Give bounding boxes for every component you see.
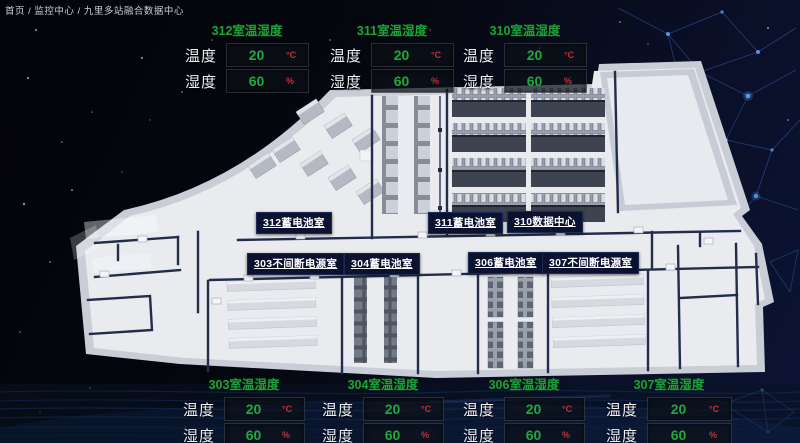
humidity-label: 湿度: [185, 71, 221, 92]
temperature-readout: 20 °C: [371, 43, 454, 67]
humidity-label: 湿度: [606, 425, 642, 443]
temperature-readout: 20 °C: [224, 397, 305, 421]
humidity-value: 60: [227, 73, 286, 89]
panel-title: 304室温湿度: [322, 374, 444, 393]
temperature-value: 20: [364, 401, 421, 417]
room-label-310[interactable]: 310数据中心: [507, 211, 583, 233]
temperature-readout: 20 °C: [504, 43, 587, 67]
sensor-panel-311: 311室温湿度 温度 20 °C 湿度 60 %: [330, 20, 454, 96]
humidity-value: 60: [372, 73, 431, 89]
breadcrumb[interactable]: 首页 / 监控中心 / 九里多站融合数据中心: [5, 3, 184, 17]
panel-title: 303室温湿度: [183, 374, 305, 393]
temperature-value: 20: [648, 401, 709, 417]
temperature-label: 温度: [330, 45, 366, 66]
celsius-unit: °C: [282, 404, 304, 414]
temperature-label: 温度: [463, 45, 499, 66]
celsius-unit: °C: [709, 404, 731, 414]
panel-title: 306室温湿度: [463, 374, 585, 393]
percent-unit: %: [421, 430, 443, 440]
temperature-label: 温度: [322, 399, 358, 420]
celsius-unit: °C: [564, 50, 586, 60]
temperature-value: 20: [227, 47, 286, 63]
sensor-panel-303: 303室温湿度 温度 20 °C 湿度 60 %: [183, 374, 305, 443]
temperature-label: 温度: [606, 399, 642, 420]
percent-unit: %: [286, 76, 308, 86]
humidity-readout: 60 %: [224, 423, 305, 443]
humidity-label: 湿度: [183, 425, 219, 443]
humidity-label: 湿度: [322, 425, 358, 443]
humidity-label: 湿度: [463, 71, 499, 92]
temperature-label: 温度: [463, 399, 499, 420]
temperature-value: 20: [505, 401, 562, 417]
humidity-value: 60: [364, 427, 421, 443]
monitoring-dashboard: 首页 / 监控中心 / 九里多站融合数据中心 312室温湿度 温度 20 °C …: [0, 0, 800, 443]
room-label-312[interactable]: 312蓄电池室: [256, 212, 332, 234]
humidity-readout: 60 %: [371, 69, 454, 93]
celsius-unit: °C: [286, 50, 308, 60]
sensor-panel-310: 310室温湿度 温度 20 °C 湿度 60 %: [463, 20, 587, 96]
percent-unit: %: [562, 430, 584, 440]
room-label-304[interactable]: 304蓄电池室: [344, 253, 420, 275]
room-label-303[interactable]: 303不间断电源室: [247, 253, 344, 275]
percent-unit: %: [709, 430, 731, 440]
panel-title: 311室温湿度: [330, 20, 454, 39]
room-label-307[interactable]: 307不间断电源室: [542, 252, 639, 274]
humidity-label: 湿度: [330, 71, 366, 92]
celsius-unit: °C: [431, 50, 453, 60]
humidity-label: 湿度: [463, 425, 499, 443]
celsius-unit: °C: [421, 404, 443, 414]
temperature-readout: 20 °C: [226, 43, 309, 67]
temperature-label: 温度: [185, 45, 221, 66]
temperature-value: 20: [372, 47, 431, 63]
temperature-label: 温度: [183, 399, 219, 420]
percent-unit: %: [564, 76, 586, 86]
room-label-311[interactable]: 311蓄电池室: [428, 212, 503, 234]
temperature-readout: 20 °C: [647, 397, 732, 421]
humidity-readout: 60 %: [226, 69, 309, 93]
temperature-readout: 20 °C: [363, 397, 444, 421]
temperature-value: 20: [505, 47, 564, 63]
humidity-readout: 60 %: [363, 423, 444, 443]
humidity-value: 60: [225, 427, 282, 443]
celsius-unit: °C: [562, 404, 584, 414]
percent-unit: %: [431, 76, 453, 86]
humidity-readout: 60 %: [647, 423, 732, 443]
humidity-value: 60: [505, 427, 562, 443]
sensor-panel-304: 304室温湿度 温度 20 °C 湿度 60 %: [322, 374, 444, 443]
humidity-readout: 60 %: [504, 423, 585, 443]
sensor-panel-306: 306室温湿度 温度 20 °C 湿度 60 %: [463, 374, 585, 443]
temperature-value: 20: [225, 401, 282, 417]
panel-title: 307室温湿度: [606, 374, 732, 393]
humidity-value: 60: [505, 73, 564, 89]
humidity-value: 60: [648, 427, 709, 443]
percent-unit: %: [282, 430, 304, 440]
sensor-panel-312: 312室温湿度 温度 20 °C 湿度 60 %: [185, 20, 309, 96]
temperature-readout: 20 °C: [504, 397, 585, 421]
panel-title: 312室温湿度: [185, 20, 309, 39]
room-label-306[interactable]: 306蓄电池室: [468, 252, 544, 274]
sensor-panel-307: 307室温湿度 温度 20 °C 湿度 60 %: [606, 374, 732, 443]
humidity-readout: 60 %: [504, 69, 587, 93]
panel-title: 310室温湿度: [463, 20, 587, 39]
